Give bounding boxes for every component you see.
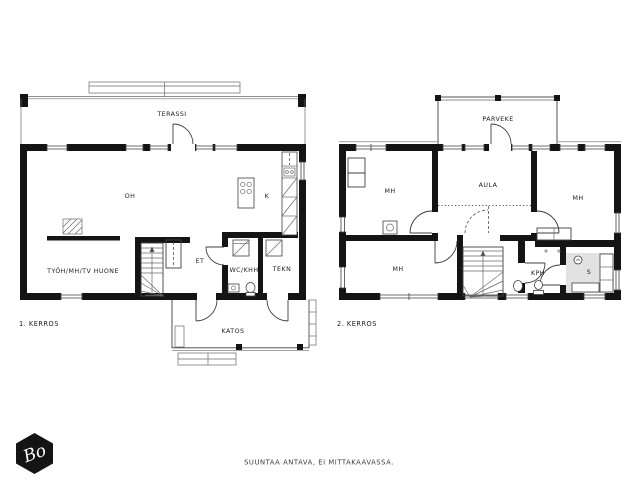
room-label-mh-lower: MH bbox=[392, 266, 403, 273]
room-label-parveke: PARVEKE bbox=[482, 116, 513, 123]
floor2-stairs bbox=[463, 247, 503, 297]
room-label-mh-left: MH bbox=[384, 188, 395, 195]
floor2-title: 2. KERROS bbox=[337, 320, 377, 328]
brand-logo: Bo bbox=[16, 433, 53, 474]
room-label-terassi: TERASSI bbox=[156, 111, 186, 118]
floor2-mh-right-closet bbox=[537, 228, 571, 240]
room-label-aula: AULA bbox=[479, 182, 498, 189]
floor1-title: 1. KERROS bbox=[19, 320, 59, 328]
floor1-entry-steps bbox=[178, 353, 236, 365]
floor1-eave bbox=[20, 94, 306, 144]
floor1-tekn-fixtures bbox=[266, 240, 282, 256]
room-label-kph: KPH bbox=[531, 270, 545, 277]
floor2-plan: PARVEKE MH AULA MH MH KPH S 2. KERROS bbox=[337, 95, 621, 328]
room-label-wc-khh: WC/KHH bbox=[229, 267, 258, 274]
floor2-aula-markings bbox=[438, 206, 531, 234]
footer-note: SUUNTAA ANTAVA, EI MITTAKAAVASSA. bbox=[244, 459, 394, 467]
sauna-stove-icon bbox=[574, 256, 582, 264]
room-label-workroom: TYÖH/MH/TV HUONE bbox=[46, 266, 119, 275]
floorplan-drawing: TERASSI OH K TYÖH/MH/TV HUONE ET WC/KHH … bbox=[0, 0, 640, 480]
floor1-plan: TERASSI OH K TYÖH/MH/TV HUONE ET WC/KHH … bbox=[19, 82, 316, 365]
room-label-tekn: TEKN bbox=[272, 266, 291, 273]
room-label-s: S bbox=[587, 269, 591, 276]
room-label-oh: OH bbox=[125, 193, 136, 200]
room-label-k: K bbox=[265, 193, 270, 200]
room-label-katos: KATOS bbox=[222, 328, 245, 335]
floor1-closet bbox=[166, 240, 181, 268]
floor1-fireplace bbox=[63, 219, 82, 234]
floor1-windows bbox=[47, 144, 306, 300]
room-label-mh-right: MH bbox=[572, 195, 583, 202]
floor1-pergola bbox=[89, 82, 240, 97]
floor2-mh-left-fixtures bbox=[348, 158, 397, 234]
floor1-stairs bbox=[141, 243, 163, 296]
room-label-et: ET bbox=[196, 258, 205, 265]
